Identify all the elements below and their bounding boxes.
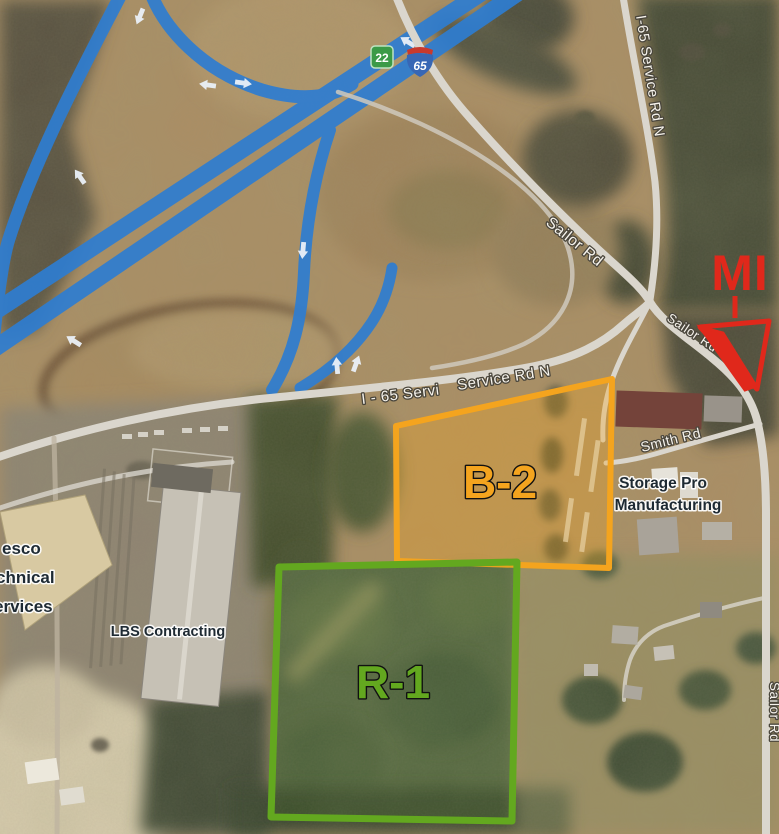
storage-pro-building [615, 391, 702, 430]
place-label-lbs-contracting: LBS Contracting [111, 624, 225, 640]
zone-r1: R-1 [271, 562, 517, 821]
aerial-zoning-map: B-2 R-1 22 65 I-65 Service Rd N I - 65 S… [0, 0, 779, 834]
place-label-partial-line1: esco [2, 539, 41, 558]
mi-label: MI [711, 245, 769, 301]
map-canvas: B-2 R-1 22 65 I-65 Service Rd N I - 65 S… [0, 0, 779, 834]
place-label-partial-line2: chnical [0, 568, 55, 587]
place-label-partial-line3: ervices [0, 597, 53, 616]
interstate-65-number: 65 [413, 59, 427, 73]
zone-b2-label: B-2 [463, 456, 537, 508]
shield-al-22: 22 [371, 46, 393, 68]
state-route-22-number: 22 [375, 51, 389, 65]
place-label-storage-pro-line1: Storage Pro [619, 475, 707, 492]
zone-r1-label: R-1 [356, 656, 430, 708]
place-label-storage-pro-line2: Manufacturing [615, 497, 722, 514]
road-label-sailor-rd-s: Sailor Rd [767, 682, 779, 742]
